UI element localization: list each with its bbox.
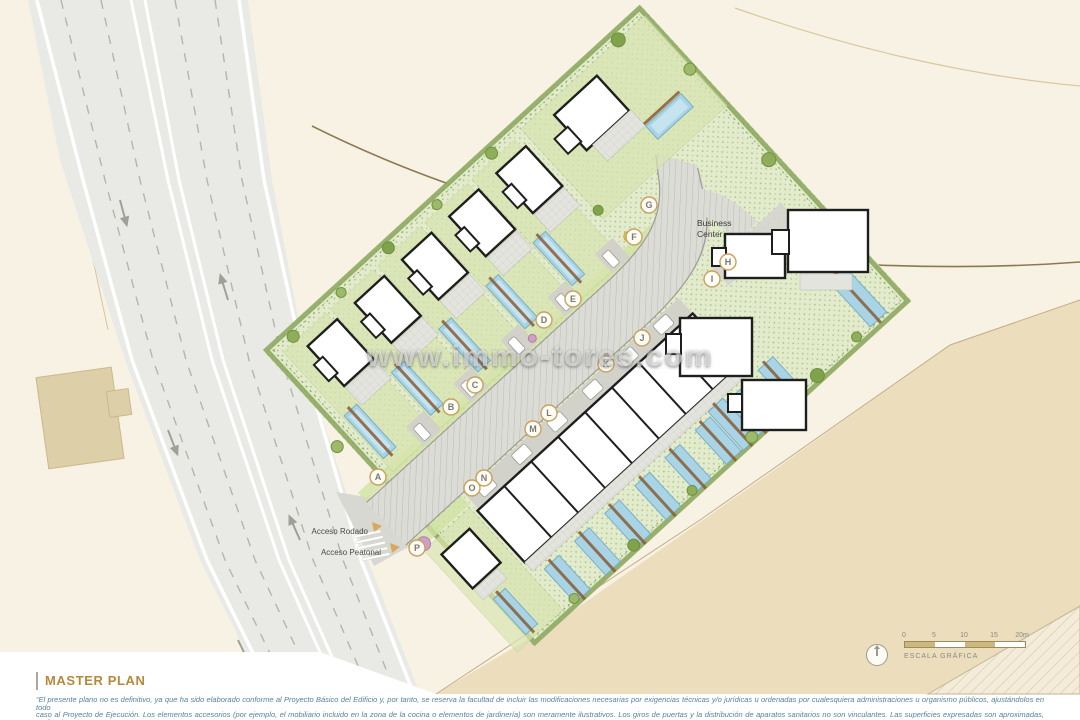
plot-marker-p: P	[409, 540, 425, 556]
svg-text:E: E	[570, 294, 576, 304]
plot-marker-b: B	[443, 399, 459, 415]
svg-text:N: N	[481, 473, 488, 483]
svg-text:F: F	[631, 232, 637, 242]
svg-text:O: O	[468, 483, 475, 493]
svg-text:Business: Business	[697, 218, 732, 228]
scale-bar: 0 5 10 15 20m ESCALA GRÁFICA	[866, 632, 1028, 666]
svg-text:L: L	[546, 408, 552, 418]
sheet-title: MASTER PLAN	[36, 672, 146, 690]
acceso-rodado-label: Acceso Rodado	[312, 527, 369, 536]
plot-marker-a: A	[370, 469, 386, 485]
scale-bar-ticks: 0 5 10 15 20m	[904, 632, 1028, 641]
master-plan-sheet: Acceso Rodado Acceso Peatonal Business C…	[0, 0, 1080, 720]
plot-marker-g: G	[641, 197, 657, 213]
scale-bar-caption: ESCALA GRÁFICA	[904, 653, 1028, 660]
disclaimer-line-2: caso al Proyecto de Ejecución. Los eleme…	[36, 711, 1044, 720]
north-compass-icon	[866, 644, 888, 666]
disclaimer-line-1: “El presente plano no es definitivo, ya …	[36, 696, 1044, 711]
plot-marker-e: E	[565, 291, 581, 307]
plot-marker-l: L	[541, 405, 557, 421]
plot-marker-o: O	[464, 480, 480, 496]
svg-text:G: G	[645, 200, 652, 210]
svg-text:C: C	[472, 380, 479, 390]
scale-tick-15: 15	[990, 632, 998, 639]
plot-marker-f: F	[626, 229, 642, 245]
svg-text:H: H	[725, 257, 732, 267]
acceso-peatonal-label: Acceso Peatonal	[321, 548, 381, 557]
scale-tick-10: 10	[960, 632, 968, 639]
svg-text:M: M	[529, 424, 537, 434]
scale-bar-graphic	[904, 641, 1026, 648]
plot-marker-h: H	[720, 254, 736, 270]
watermark: www.immo-tores.com	[367, 340, 714, 374]
plot-marker-d: D	[536, 312, 552, 328]
svg-text:B: B	[448, 402, 455, 412]
svg-text:Center: Center	[697, 229, 723, 239]
scale-tick-5: 5	[932, 632, 936, 639]
scale-tick-0: 0	[902, 632, 906, 639]
disclaimer: “El presente plano no es definitivo, ya …	[36, 696, 1044, 720]
svg-text:P: P	[414, 543, 420, 553]
plot-marker-i: I	[704, 271, 720, 287]
svg-text:I: I	[711, 274, 714, 284]
plot-marker-c: C	[467, 377, 483, 393]
svg-text:A: A	[375, 472, 382, 482]
scale-tick-20: 20m	[1015, 632, 1029, 639]
sheet-title-text: MASTER PLAN	[36, 672, 146, 690]
svg-text:D: D	[541, 315, 548, 325]
plot-marker-m: M	[525, 421, 541, 437]
